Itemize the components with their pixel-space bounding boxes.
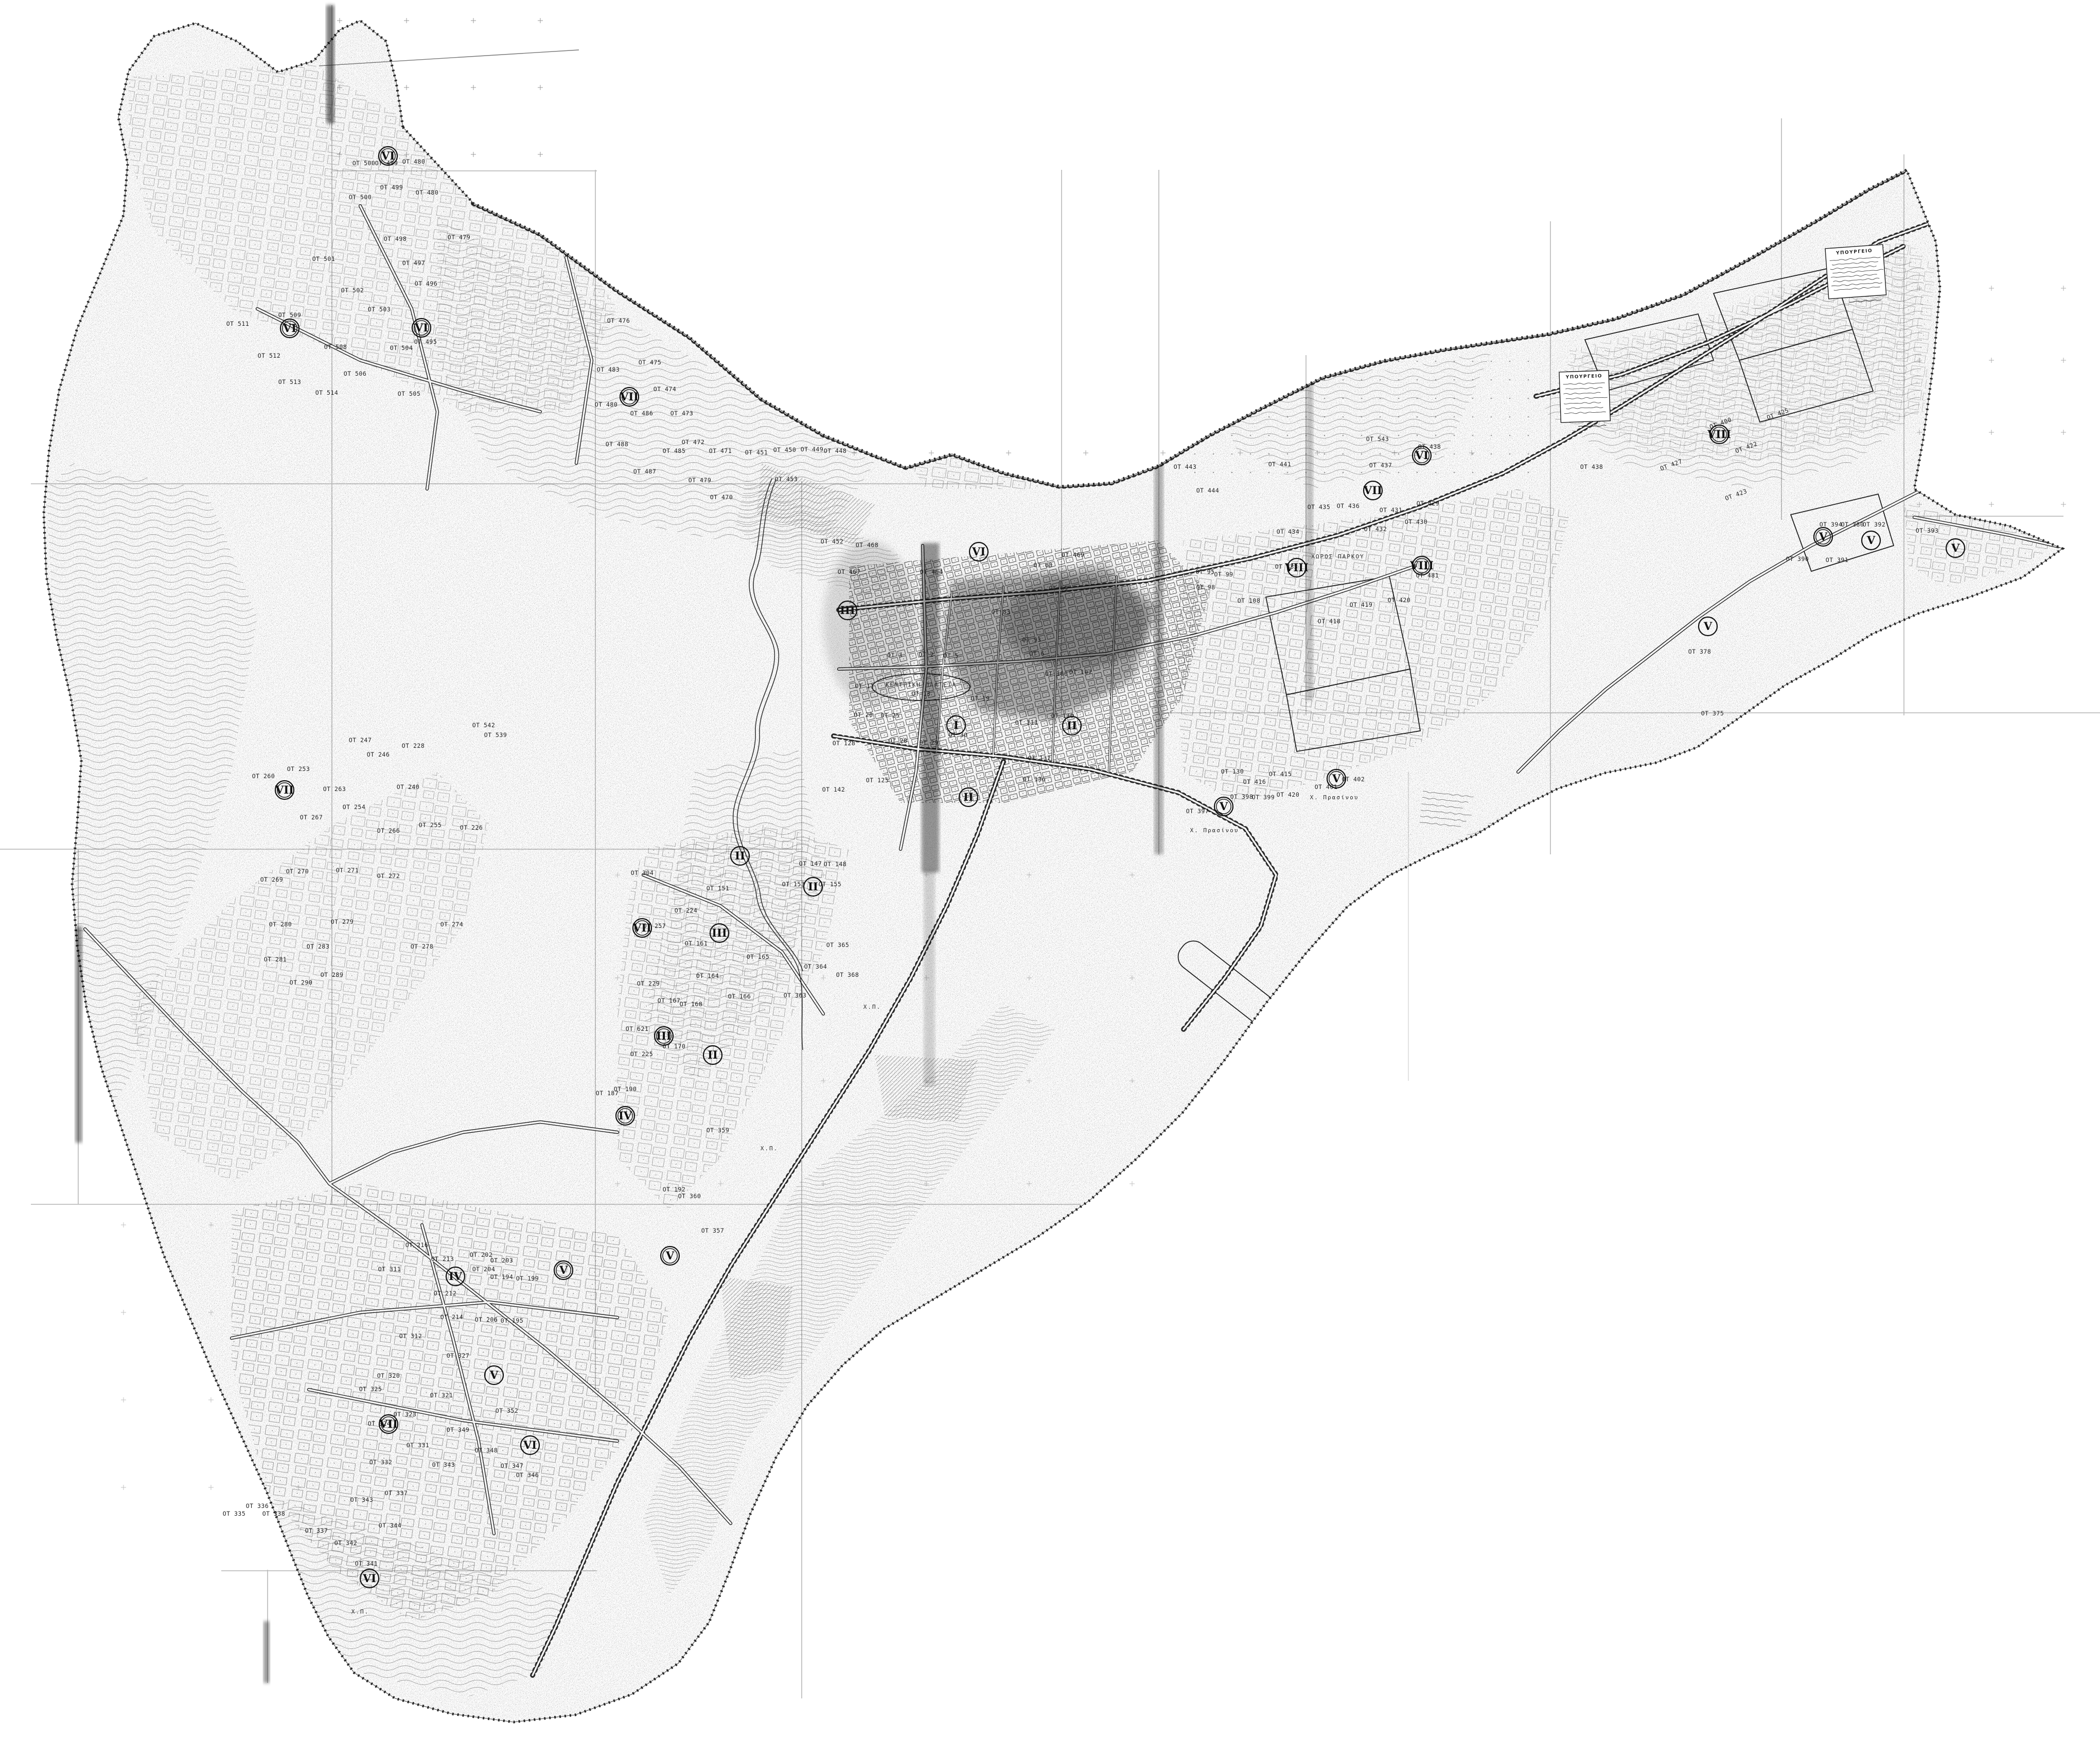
block-label: OT 128: [833, 740, 856, 747]
district-numeral: II: [808, 880, 818, 893]
block-label: OT 65: [1049, 585, 1068, 592]
block-label: OT 497: [402, 259, 426, 267]
district-numeral: VI: [283, 322, 296, 335]
block-label: OT 194: [490, 1273, 514, 1280]
block-label: OT 365: [826, 941, 850, 949]
block-label: OT 380: [1841, 521, 1864, 528]
block-label: OT 470: [710, 494, 733, 501]
block-label: OT 337: [385, 1489, 408, 1497]
block-label: OT 5: [943, 652, 959, 659]
block-label: OT 543: [1366, 435, 1389, 443]
block-label: OT 130: [1221, 768, 1244, 775]
block-label: OT 342: [334, 1539, 358, 1547]
area-label: Χ.Π.: [863, 1004, 881, 1010]
block-label: OT 267: [300, 814, 323, 821]
block-label: OT 506: [344, 370, 367, 377]
block-label: OT 512: [258, 352, 281, 359]
block-label: OT 240: [397, 783, 420, 791]
block-label: OT 346: [516, 1471, 539, 1479]
block-label: OT 136: [1023, 776, 1046, 783]
block-label: OT 500: [349, 194, 372, 201]
block-label: OT 202: [470, 1251, 493, 1258]
district-numeral: II: [708, 1048, 718, 1061]
block-label: OT 167: [658, 997, 681, 1004]
block-label: OT 420: [1388, 596, 1411, 604]
block-label: OT 325: [359, 1385, 382, 1393]
district-numeral: III: [656, 1029, 671, 1042]
block-label: OT 448: [824, 447, 847, 454]
block-label: OT 348: [475, 1447, 498, 1454]
block-label: OT 320: [377, 1372, 400, 1379]
block-label: OT 474: [654, 385, 677, 393]
block-label: OT 347: [501, 1462, 524, 1469]
block-label: OT 19: [970, 695, 990, 702]
district-numeral: V: [1951, 541, 1960, 554]
block-label: OT 429: [1417, 500, 1440, 507]
district-numeral: III: [840, 604, 855, 617]
block-label: OT 363: [784, 992, 807, 999]
district-numeral: IV: [619, 1109, 632, 1122]
block-label: OT 443: [1174, 463, 1197, 470]
block-label: OT 338: [262, 1510, 286, 1517]
block-label: OT 107: [1069, 669, 1092, 676]
block-label: OT 272: [377, 872, 400, 880]
block-label: OT 486: [630, 410, 654, 417]
block-label: OT 224: [675, 907, 698, 914]
district-numeral: V: [1219, 800, 1228, 813]
block-label: OT 29: [919, 739, 938, 746]
area-label: Χ.Π.: [761, 1145, 779, 1152]
block-label: OT 360: [678, 1192, 701, 1200]
block-label: OT 269: [260, 876, 284, 883]
area-label: Χ. Πρασίνου: [1310, 794, 1359, 801]
district-numeral: IV: [449, 1270, 463, 1283]
block-label: OT 260: [252, 773, 275, 780]
block-label: OT 226: [460, 824, 483, 831]
district-numeral: VII: [632, 921, 651, 934]
block-label: OT 192: [663, 1186, 686, 1193]
block-label: OT 444: [1196, 487, 1220, 494]
block-label: OT 476: [607, 317, 630, 324]
block-label: OT 289: [321, 971, 344, 978]
block-label: OT 11: [855, 682, 874, 690]
district-numeral: VI: [972, 545, 985, 558]
block-label: OT 30: [948, 731, 967, 739]
block-label: OT 290: [290, 979, 313, 986]
block-label: OT 263: [323, 785, 346, 793]
block-label: OT 450: [773, 446, 797, 453]
block-label: OT 327: [447, 1352, 470, 1359]
block-label: OT 397: [1186, 808, 1209, 815]
block-label: OT 419: [1350, 601, 1373, 608]
block-label: OT 132: [1028, 755, 1051, 762]
block-label: OT 270: [286, 868, 309, 875]
block-label: OT 508: [324, 343, 347, 350]
block-label: OT 246: [367, 751, 390, 758]
block-label: OT 393: [1916, 527, 1939, 534]
block-label: OT 480: [416, 189, 439, 196]
block-label: OT 349: [447, 1426, 470, 1433]
block-label: OT 480: [595, 401, 618, 408]
block-label: OT 213: [431, 1255, 454, 1262]
block-label: OT 449: [801, 446, 824, 453]
block-label: OT 271: [336, 867, 359, 874]
block-label: OT 274: [440, 921, 464, 928]
block-label: OT 166: [728, 993, 751, 1000]
block-label: OT 500: [352, 160, 376, 167]
district-numeral: VI: [414, 321, 428, 334]
block-label: OT 28: [888, 737, 907, 744]
block-label: OT 432: [1364, 525, 1387, 533]
district-numeral: VI: [523, 1438, 537, 1451]
block-label: OT 20: [854, 711, 873, 718]
block-label: OT 498: [384, 235, 407, 242]
district-numeral: V: [665, 1249, 675, 1262]
block-label: OT 187: [596, 1090, 619, 1097]
block-label: OT 368: [836, 971, 859, 978]
block-label: OT 247: [349, 736, 372, 744]
block-label: OT 212: [434, 1290, 457, 1297]
block-label: OT 621: [626, 1025, 649, 1032]
block-label: OT 539: [484, 731, 507, 739]
district-numeral: VIII: [1284, 561, 1309, 574]
block-label: OT 473: [670, 410, 694, 417]
block-label: OT 496: [415, 280, 438, 287]
block-label: OT 513: [278, 378, 302, 385]
block-label: OT 344: [379, 1522, 402, 1529]
block-label: OT 165: [747, 953, 770, 960]
block-label: OT 436: [1337, 502, 1360, 510]
block-label: OT 170: [663, 1043, 686, 1050]
block-label: OT 153: [782, 881, 805, 888]
block-label: OT 468: [856, 541, 879, 549]
block-label: OT 514: [315, 389, 339, 396]
area-label: ΚΕΝΤΡΙΚΗ ΠΛΑΤΕΙΑ: [886, 681, 957, 688]
block-label: OT 335: [223, 1510, 246, 1517]
block-label: OT 216: [405, 1241, 429, 1249]
district-numeral: VII: [1363, 484, 1382, 497]
block-label: OT 504: [390, 344, 413, 352]
block-label: OT 420: [1277, 791, 1300, 798]
district-numeral: VII: [275, 783, 294, 796]
block-label: OT 502: [341, 287, 364, 294]
block-label: OT 357: [701, 1227, 725, 1234]
block-label: OT 341: [355, 1560, 378, 1567]
block-label: OT 125: [866, 777, 889, 784]
block-label: OT 475: [639, 359, 662, 366]
block-label: OT 283: [307, 943, 330, 950]
block-label: OT 253: [287, 765, 310, 773]
block-label: OT 321: [430, 1392, 453, 1399]
block-label: OT 106: [1045, 670, 1068, 677]
district-numeral: I: [954, 718, 959, 731]
block-label: OT 505: [398, 390, 421, 397]
block-label: OT 399: [1252, 794, 1275, 801]
area-label: Χ. Πρασίνου: [1190, 827, 1239, 834]
block-label: OT 418: [1318, 618, 1341, 625]
block-label: OT 487: [633, 468, 657, 475]
block-label: OT 332: [369, 1459, 393, 1466]
block-label: OT 254: [343, 803, 366, 811]
block-label: OT 279: [331, 918, 354, 925]
annotation-note: ΥΠΟΥΡΓΕΙΟ: [1559, 371, 1611, 428]
block-label: OT 480: [402, 158, 426, 165]
block-label: OT 312: [399, 1332, 422, 1340]
block-label: OT 164: [696, 972, 719, 979]
block-label: OT 416: [1243, 778, 1266, 785]
block-label: OT 266: [377, 827, 400, 834]
block-label: OT 483: [597, 366, 620, 373]
block-label: OT 323: [394, 1411, 417, 1418]
block-label: OT 503: [368, 306, 391, 313]
district-numeral: V: [1332, 772, 1341, 785]
district-numeral: II: [1067, 719, 1077, 732]
block-label: OT 431: [1380, 506, 1403, 514]
block-label: OT 343: [350, 1496, 374, 1503]
block-label: OT 451: [745, 449, 768, 456]
scanned-city-plan-page: Scanned cadastral town-plan mosaic (Gree…: [0, 0, 2100, 1737]
block-label: OT 148: [824, 861, 847, 868]
block-label: OT 430: [1405, 518, 1428, 525]
block-label: OT 280: [269, 921, 292, 928]
block-label: OT 336: [246, 1502, 269, 1510]
block-label: OT 229: [637, 980, 660, 987]
block-label: OT 147: [799, 860, 822, 867]
district-numeral: VIII: [1409, 559, 1434, 572]
block-label: OT 203: [490, 1257, 514, 1264]
block-label: OT 352: [496, 1407, 519, 1414]
block-label: OT 206: [475, 1316, 498, 1323]
block-label: OT 151: [707, 885, 730, 892]
block-label: OT 3: [887, 652, 903, 659]
block-label: OT 25: [880, 712, 899, 719]
block-label: OT 99: [1214, 571, 1233, 578]
district-numeral: III: [712, 926, 727, 939]
block-label: OT 108: [1238, 597, 1261, 604]
block-label: OT 364: [804, 963, 827, 970]
block-label: OT 2: [919, 651, 934, 658]
block-label: OT 278: [411, 943, 434, 950]
block-label: OT 437: [1369, 462, 1392, 469]
block-label: OT 378: [1688, 648, 1711, 655]
block-label: OT 98: [1196, 584, 1215, 591]
block-label: OT 111: [1015, 719, 1038, 726]
block-label: OT 68: [1033, 562, 1052, 569]
block-label: OT 228: [402, 742, 425, 749]
block-label: OT 485: [663, 447, 686, 454]
block-label: OT 110: [1051, 712, 1074, 720]
block-label: OT 195: [501, 1317, 524, 1324]
block-label: OT 204: [472, 1266, 496, 1273]
district-numeral: V: [1703, 620, 1713, 633]
block-label: OT 311: [378, 1266, 401, 1273]
district-numeral: VI: [381, 149, 395, 162]
block-label: OT 499: [380, 184, 403, 191]
district-numeral: VIII: [1707, 428, 1731, 441]
block-label: OT 343: [432, 1461, 455, 1468]
district-numeral: V: [1819, 530, 1828, 543]
block-label: OT 398: [1230, 793, 1254, 800]
block-label: OT 394: [1820, 521, 1843, 528]
block-label: OT 359: [707, 1127, 730, 1134]
block-label: OT 509: [278, 311, 302, 319]
area-label: ΧΩΡΟΣ ΠΑΡΚΟΥ: [1311, 553, 1364, 560]
block-label: OT 168: [680, 1001, 703, 1008]
district-numeral: V: [559, 1264, 568, 1276]
block-label: OT 472: [682, 438, 705, 446]
block-label: OT 331: [407, 1442, 430, 1449]
block-label: OT 391: [1826, 556, 1849, 564]
block-label: OT 464: [920, 568, 943, 575]
block-label: OT 392: [1863, 521, 1886, 528]
block-label: OT 435: [1308, 503, 1331, 511]
district-numeral: VI: [1415, 449, 1428, 462]
district-numeral: VII: [620, 390, 639, 403]
block-label: OT 415: [1269, 770, 1292, 778]
block-label: OT 6: [1029, 650, 1045, 657]
block-label: OT 142: [822, 786, 845, 793]
block-label: OT 83: [991, 608, 1010, 616]
block-label: OT 375: [1701, 710, 1724, 717]
block-label: OT 511: [226, 320, 250, 327]
block-label: OT 441: [1268, 461, 1292, 468]
district-numeral: VI: [362, 1572, 376, 1585]
block-label: OT 542: [472, 722, 496, 729]
block-label: OT 214: [440, 1313, 464, 1321]
block-label: OT 95: [1195, 568, 1214, 575]
area-label: Χ.Π.: [351, 1608, 369, 1615]
district-numeral: II: [963, 791, 974, 803]
block-label: OT 471: [709, 447, 732, 454]
annotation-note: ΥΠΟΥΡΓΕΙΟ: [1825, 244, 1886, 304]
block-label: OT 390: [1786, 555, 1809, 563]
district-numeral: II: [735, 849, 745, 862]
block-label: OT 488: [606, 441, 629, 448]
block-label: OT 434: [1277, 528, 1300, 535]
block-label: OT 225: [630, 1050, 654, 1058]
block-label: OT 337: [305, 1527, 328, 1534]
block-label: OT 501: [312, 255, 336, 262]
block-label: OT 438: [1580, 463, 1603, 470]
block-label: OT 93: [1022, 636, 1041, 643]
district-numeral: V: [1866, 534, 1876, 547]
block-label: OT 479: [689, 477, 712, 484]
block-label: OT 469: [1062, 551, 1085, 558]
block-label: OT 453: [775, 476, 798, 483]
block-label: OT 255: [419, 821, 442, 829]
block-label: OT 161: [685, 940, 708, 947]
district-numeral: VII: [379, 1417, 398, 1430]
map-canvas: Scanned cadastral town-plan mosaic (Gree…: [0, 0, 2100, 1737]
block-label: OT 304: [631, 869, 654, 876]
block-label: OT 13: [911, 690, 930, 697]
block-label: OT 281: [264, 956, 287, 963]
block-label: OT 495: [414, 338, 437, 345]
block-label: OT 199: [516, 1275, 539, 1282]
district-numeral: V: [489, 1368, 499, 1381]
block-label: OT 467: [838, 568, 861, 575]
block-label: OT 479: [448, 234, 471, 241]
block-label: OT 452: [821, 538, 844, 545]
